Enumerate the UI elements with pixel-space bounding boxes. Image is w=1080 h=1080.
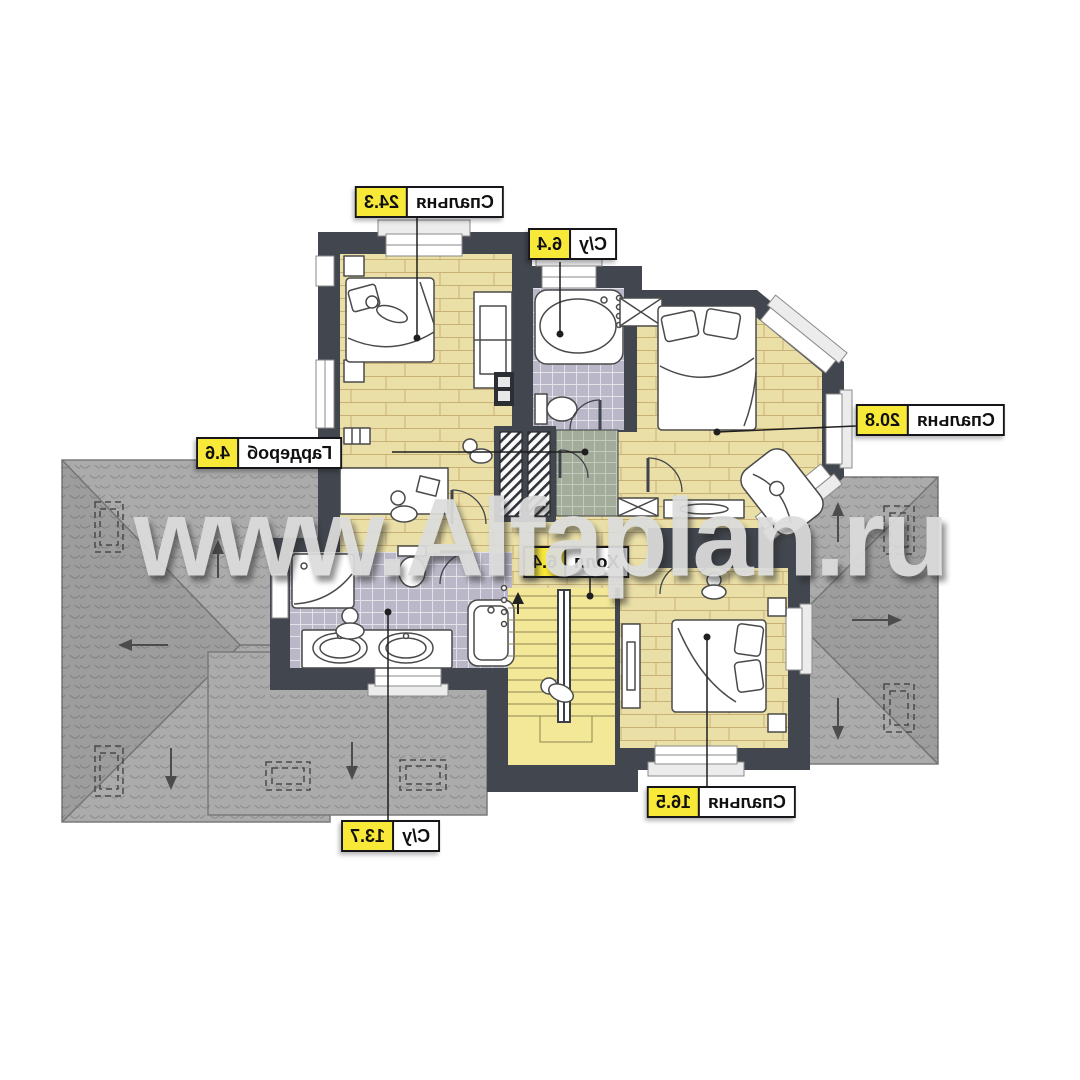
floor-plan-page: Спальня24.3 С/у6.4 Спальня20.8 Гардероб4… [0, 0, 1080, 1080]
room-name: Холл [566, 548, 627, 576]
room-name: Спальня [700, 788, 794, 816]
room-name: Спальня [408, 188, 502, 216]
window [786, 608, 802, 670]
room-label-hall: Холл6.4 [523, 546, 629, 578]
nightstand [344, 360, 364, 382]
toilet-tank [535, 394, 547, 424]
person [702, 585, 726, 599]
room-area: 20.8 [858, 406, 909, 434]
room-label-bedroom-1: Спальня24.3 [355, 186, 504, 218]
person [470, 449, 492, 463]
room-name: С/у [571, 230, 615, 258]
room-label-bedroom-3: Спальня16.5 [647, 786, 796, 818]
room-label-bedroom-2: Спальня20.8 [856, 404, 1005, 436]
nightstand [768, 598, 786, 616]
room-label-bathroom-2: С/у13.7 [341, 820, 440, 852]
wardrobe-room [494, 426, 618, 522]
room-area: 13.7 [343, 822, 394, 850]
shower [292, 554, 354, 608]
room-name: С/у [394, 822, 438, 850]
floor-plan-drawing [0, 0, 1080, 1080]
bay-window [826, 394, 842, 464]
toilet [399, 557, 425, 587]
room-label-bathroom-1: С/у6.4 [528, 228, 617, 260]
room-area: 16.5 [649, 788, 700, 816]
room-label-wardrobe: Гардероб4.6 [196, 437, 342, 469]
radiator [344, 428, 370, 444]
person [342, 608, 358, 624]
person [391, 491, 405, 505]
room-name: Спальня [909, 406, 1003, 434]
room-name: Гардероб [239, 439, 340, 467]
person [366, 296, 378, 308]
clothes-rack [528, 432, 550, 516]
nightstand [344, 256, 364, 276]
room-area: 6.4 [525, 548, 566, 576]
clothes-rack [500, 432, 522, 516]
person [336, 623, 364, 639]
room-area: 24.3 [357, 188, 408, 216]
toilet-tank [398, 546, 426, 556]
room-area: 6.4 [530, 230, 571, 258]
nightstand [768, 714, 786, 732]
window [272, 574, 288, 618]
window [316, 256, 334, 286]
person [391, 506, 417, 522]
right-roof [795, 477, 938, 764]
room-area: 4.6 [198, 439, 239, 467]
